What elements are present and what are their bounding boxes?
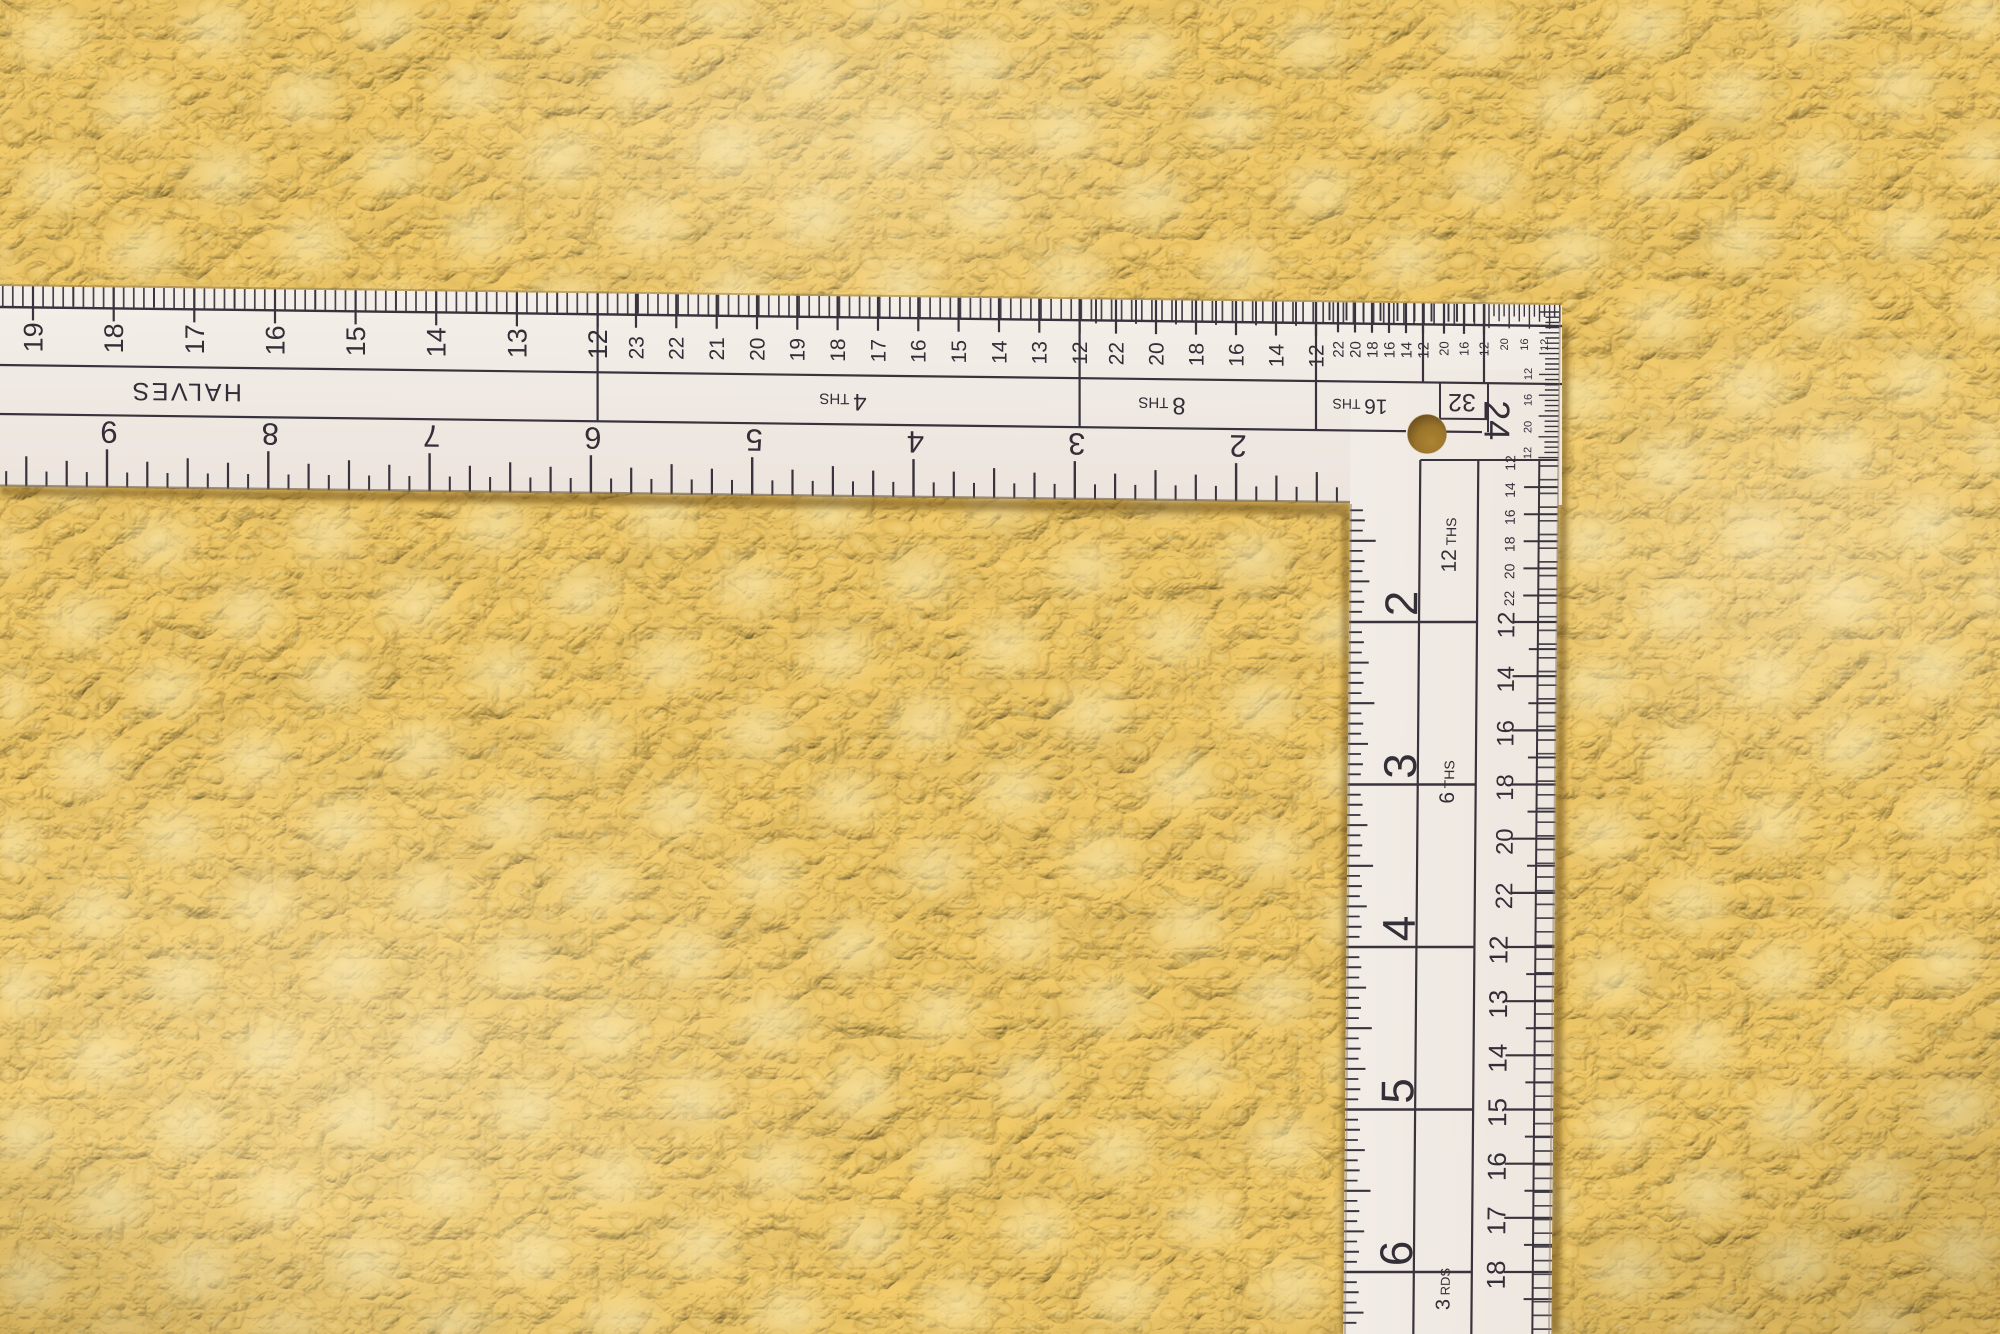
svg-text:17: 17: [867, 339, 890, 363]
svg-text:16: 16: [1492, 720, 1519, 747]
svg-text:14: 14: [1502, 482, 1518, 498]
svg-text:14: 14: [1483, 1044, 1513, 1073]
svg-text:22: 22: [1330, 341, 1347, 358]
svg-text:17: 17: [1481, 1206, 1511, 1235]
svg-text:16: 16: [1482, 1152, 1512, 1181]
svg-text:9: 9: [100, 414, 117, 449]
svg-text:14: 14: [1493, 666, 1520, 693]
svg-text:20: 20: [1347, 341, 1364, 358]
svg-text:12: 12: [583, 329, 613, 359]
svg-text:20: 20: [1501, 563, 1517, 579]
svg-text:12: 12: [1069, 341, 1092, 365]
svg-text:18: 18: [1364, 341, 1381, 358]
svg-text:16: 16: [1225, 343, 1248, 367]
svg-text:6: 6: [1370, 1241, 1422, 1267]
svg-text:21: 21: [706, 337, 729, 361]
svg-text:5: 5: [1371, 1078, 1423, 1104]
svg-text:4: 4: [907, 424, 924, 459]
svg-text:12: 12: [1305, 344, 1328, 368]
svg-text:16: 16: [908, 339, 931, 363]
svg-text:14: 14: [988, 340, 1011, 364]
svg-text:12: 12: [1522, 447, 1534, 459]
svg-text:24: 24: [1476, 400, 1517, 441]
svg-text:16: 16: [1519, 338, 1531, 350]
svg-text:22: 22: [1491, 883, 1518, 910]
svg-text:18: 18: [1492, 774, 1519, 801]
svg-text:18: 18: [99, 323, 129, 353]
svg-text:13: 13: [502, 328, 532, 358]
svg-text:12: 12: [1415, 342, 1432, 359]
svg-text:16: 16: [1502, 509, 1518, 525]
svg-text:12: 12: [1523, 368, 1535, 380]
svg-text:12: 12: [1493, 612, 1520, 639]
svg-text:15: 15: [948, 340, 971, 364]
svg-text:HALVES: HALVES: [130, 377, 242, 406]
svg-text:20: 20: [1492, 828, 1519, 855]
svg-text:20: 20: [1499, 338, 1511, 350]
svg-text:18: 18: [1185, 343, 1208, 367]
svg-text:12: 12: [1539, 339, 1551, 351]
svg-text:32: 32: [1448, 388, 1476, 416]
svg-text:12: 12: [1483, 936, 1513, 965]
svg-text:16: 16: [1381, 342, 1398, 359]
svg-text:22: 22: [1105, 342, 1128, 366]
svg-text:2: 2: [1229, 428, 1246, 463]
svg-text:18: 18: [1481, 1261, 1511, 1290]
svg-text:16: 16: [260, 325, 290, 355]
svg-text:23: 23: [625, 336, 648, 360]
svg-text:22: 22: [1501, 591, 1517, 607]
svg-text:13: 13: [1483, 990, 1513, 1019]
svg-text:20: 20: [1522, 421, 1534, 433]
svg-text:13: 13: [1029, 341, 1052, 365]
svg-text:15: 15: [1482, 1098, 1512, 1127]
svg-text:14: 14: [422, 327, 452, 357]
svg-text:16: 16: [1523, 394, 1535, 406]
svg-text:18: 18: [827, 338, 850, 362]
svg-text:4: 4: [1373, 916, 1425, 942]
svg-text:12: 12: [1502, 455, 1518, 471]
svg-text:8: 8: [262, 416, 279, 451]
svg-text:22: 22: [666, 336, 689, 360]
svg-text:12: 12: [1477, 342, 1492, 357]
svg-text:3: 3: [1374, 753, 1426, 779]
svg-text:6: 6: [584, 420, 601, 455]
svg-text:19: 19: [18, 322, 48, 352]
svg-text:14: 14: [1398, 342, 1415, 359]
svg-text:15: 15: [341, 326, 371, 356]
svg-text:2: 2: [1375, 591, 1427, 617]
svg-text:5: 5: [746, 422, 763, 457]
svg-text:20: 20: [746, 337, 769, 361]
svg-text:20: 20: [1145, 342, 1168, 366]
svg-text:17: 17: [180, 324, 210, 354]
svg-text:16: 16: [1457, 342, 1472, 357]
svg-text:7: 7: [423, 418, 440, 453]
svg-text:3: 3: [1068, 426, 1085, 461]
svg-text:20: 20: [1437, 341, 1452, 356]
svg-text:14: 14: [1265, 343, 1288, 367]
svg-text:19: 19: [787, 338, 810, 362]
svg-text:18: 18: [1501, 536, 1517, 552]
